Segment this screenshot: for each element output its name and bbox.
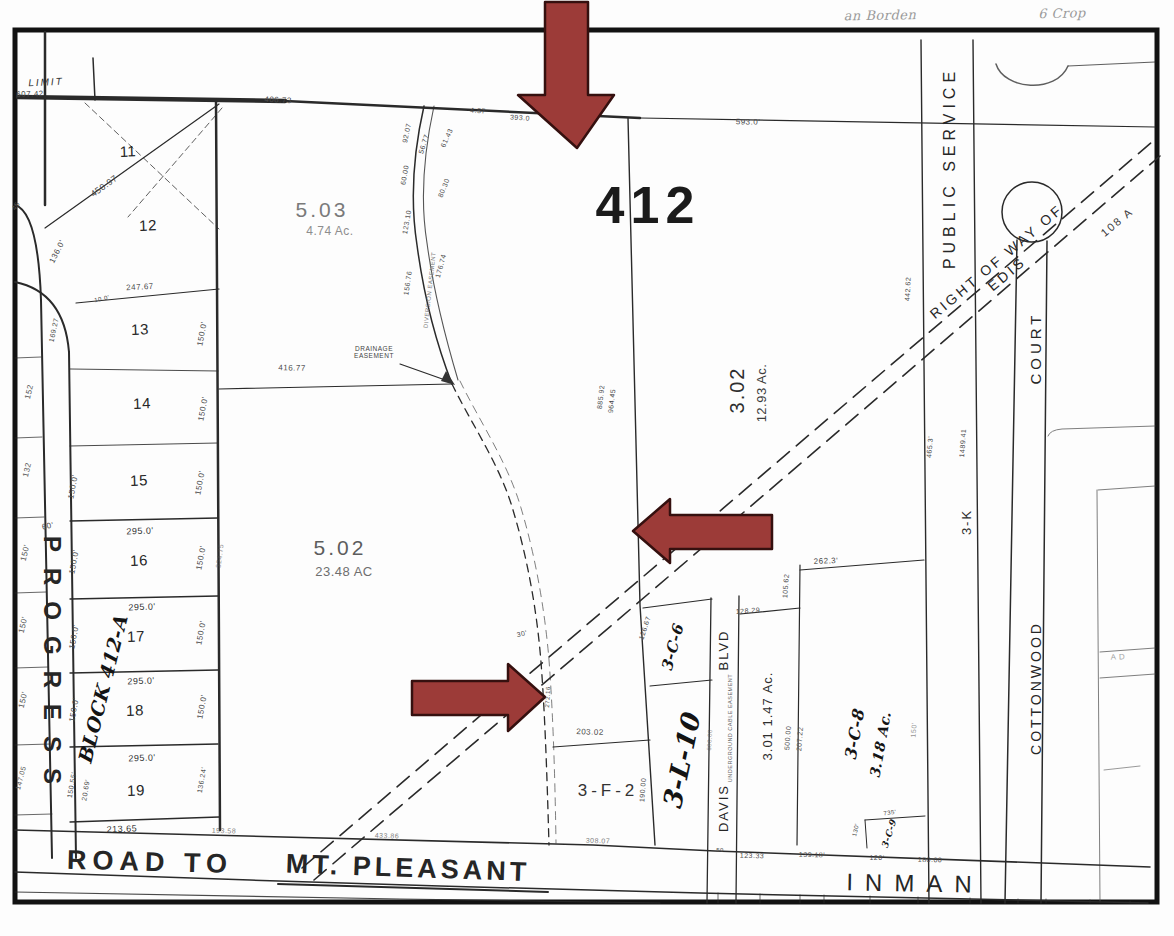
dim-label: 442.62: [903, 277, 912, 302]
dim-label: 193.58: [212, 827, 237, 836]
street-court: COURT: [1028, 311, 1045, 384]
dim-label: 393.0: [510, 114, 530, 123]
dim-label: 123.33: [740, 852, 765, 860]
lot-18-label: 18: [126, 702, 144, 719]
lot-16-label: 16: [130, 552, 148, 569]
lot-17-label: 17: [127, 628, 145, 645]
parcel-302-label: 3.02: [726, 367, 748, 414]
parcel-302-acreage: 12.93 Ac.: [755, 364, 770, 423]
lot-11-label: 11: [119, 143, 136, 160]
red-arrow-right: [412, 664, 545, 731]
dim-label: 180.00: [918, 856, 943, 864]
scan-note-left: an Borden: [844, 8, 917, 24]
limit-label: LIMIT: [28, 75, 64, 88]
dim-label: 4.57: [470, 107, 486, 116]
parcel-502-label: 5.02: [314, 536, 367, 560]
parcel-301-label: 3.01 1.47 Ac.: [761, 672, 776, 761]
red-arrow-down: [518, 2, 614, 148]
parcel-3k-label: 3-K: [960, 509, 975, 535]
street-inman: INMAN: [846, 869, 984, 898]
dim-label: 593.0': [736, 118, 761, 127]
right-edge-faint-lines: [996, 62, 1155, 902]
street-road-to: ROAD TO: [67, 845, 234, 880]
dim-label: 139.18': [799, 851, 825, 859]
lot-14-label: 14: [133, 395, 151, 412]
cottonwood-court-street: [1002, 182, 1062, 903]
red-arrow-left: [633, 499, 772, 563]
dim-label: 433.86: [375, 832, 400, 841]
street-davis: DAVIS: [717, 784, 732, 832]
street-cottonwood: COTTONWOOD: [1029, 621, 1045, 755]
plat-map-scan: an Borden 6 Crop LIMIT 412 5.03 4.74 Ac.…: [0, 0, 1174, 936]
dim-label: 295.0': [127, 675, 155, 686]
parcel-503-acreage: 4.74 Ac.: [306, 225, 353, 238]
dim-label: 150': [910, 722, 919, 738]
dim-label: 295.0': [128, 601, 156, 612]
underground-cable-easement-label: UNDERGROUND CABLE EASEMENT: [727, 674, 733, 782]
dim-label: 308.07: [586, 837, 611, 846]
dim-label: 295.0': [128, 752, 156, 763]
dim-label: 203.02: [576, 728, 604, 738]
parcel-3f2-label: 3-F-2: [578, 781, 639, 800]
parcel-502-acreage: 23.48 AC: [315, 565, 373, 580]
scan-note-right: 6 Crop: [1038, 6, 1086, 21]
drainage-easement-curve: [219, 106, 556, 845]
dim-label: 295.0': [126, 525, 154, 536]
dim-label: 120': [869, 854, 884, 862]
parcel-412-label: 412: [596, 176, 701, 234]
dim-label: 465.3': [925, 436, 934, 458]
street-blvd: BLVD: [717, 630, 732, 671]
street-progress: PROGRESS: [39, 536, 66, 800]
map-frame: [15, 30, 1157, 902]
lot-13-label: 13: [131, 321, 149, 338]
dim-label: 213.65: [107, 823, 138, 834]
drainage-easement-label: DRAINAGE EASEMENT: [354, 345, 394, 360]
parcel-503-label: 5.03: [296, 198, 349, 222]
lot-19-label: 19: [127, 782, 145, 799]
dim-label: 406.73: [264, 96, 292, 106]
dim-label: 416.77: [278, 364, 306, 373]
dim-label: 247.67: [126, 283, 154, 293]
lot-12-label: 12: [139, 217, 157, 234]
public-service-label: PUBLIC SERVICE: [941, 67, 959, 269]
lot-15-label: 15: [130, 472, 148, 489]
dim-label: A D: [1111, 653, 1126, 662]
dim-label: 262.3': [814, 557, 839, 567]
dim-label: 50: [716, 847, 724, 854]
dim-label: 607.42: [16, 90, 44, 100]
